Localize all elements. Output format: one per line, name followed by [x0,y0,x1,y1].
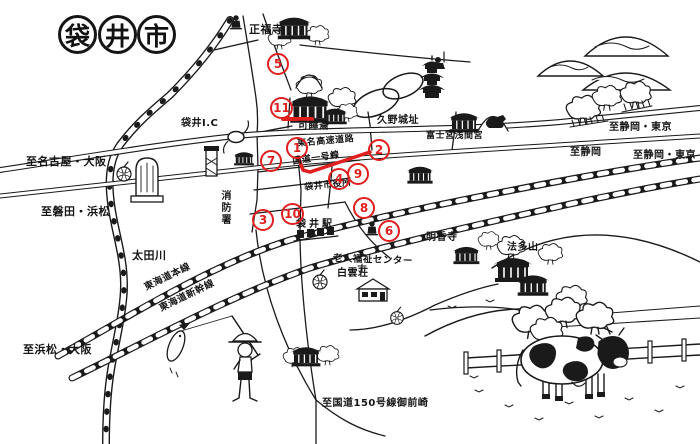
title-char: 袋 [65,17,90,53]
marker-7[interactable]: 7 [260,150,282,172]
title-circle-1: 袋 [58,15,97,54]
cow [517,327,629,401]
title-char: 市 [144,17,169,53]
title-char: 井 [105,17,130,53]
label-fire-station: 消防署 [219,190,229,226]
title-circle-2: 井 [98,15,137,54]
marker-5[interactable]: 5 [267,53,289,75]
label-kuno-castle-ruins: 久野城址 [377,116,419,126]
label-ota-river: 太田川 [132,250,167,261]
river-ota [106,20,230,444]
marker-6[interactable]: 6 [378,220,400,242]
myokoji-temple [452,247,481,264]
marker-9[interactable]: 9 [347,163,369,185]
marker-11[interactable]: 11 [270,97,293,119]
fukuroi-ic-symbol [228,132,244,143]
label-myokoji: 明香寺 [426,233,458,243]
label-fukuroi-station: 袋井駅 [296,220,335,230]
label-to-route150-omaezaki: 至国道150号線御前崎 [322,399,428,409]
label-fuji-sengen-shrine: 富士宮浅間宮 [426,132,483,141]
title-circle-3: 市 [137,15,176,54]
label-fukuroi-ic: 袋井I.C [181,119,218,129]
map-artwork [0,0,700,444]
marker-3[interactable]: 3 [252,209,274,231]
marker-10[interactable]: 10 [281,203,304,225]
label-to-shizuoka-tokyo-road: 至静岡・東京 [609,123,672,133]
marker-8[interactable]: 8 [353,197,375,219]
pagoda [419,56,445,98]
mountains [538,37,670,90]
marker-2[interactable]: 2 [368,139,390,161]
south-temple [290,347,322,366]
label-hattasan: 法多山 [507,243,539,253]
west-temple [233,152,255,165]
fire-station-tower [206,150,217,176]
label-kasuisai: 可睡斎 [298,122,330,132]
marker-1[interactable]: 1 [286,137,308,159]
label-hakuunso: 白雲荘 [337,269,369,279]
fukuroi-city-map: 袋 井 市 正福寺 袋井I.C 可睡斎 久野城址 富士宮浅間宮 至静岡・東京 至… [0,0,700,444]
label-welfare-center: 老人福祉センター [333,254,413,266]
label-to-shizuoka-tokyo-rail: 至静岡・東京 [633,151,696,161]
label-to-hamamatsu-osaka: 至浜松・大阪 [23,344,92,355]
monument [131,158,163,202]
hakuunso-house [357,279,389,301]
label-to-shizuoka: 至静岡 [570,148,602,158]
sengen-shrine [448,113,480,132]
label-to-nagoya-osaka: 至名古屋・大阪 [26,156,107,167]
label-to-iwata-hamamatsu: 至磐田・浜松 [41,206,110,217]
label-shofukuji: 正福寺 [249,24,284,35]
